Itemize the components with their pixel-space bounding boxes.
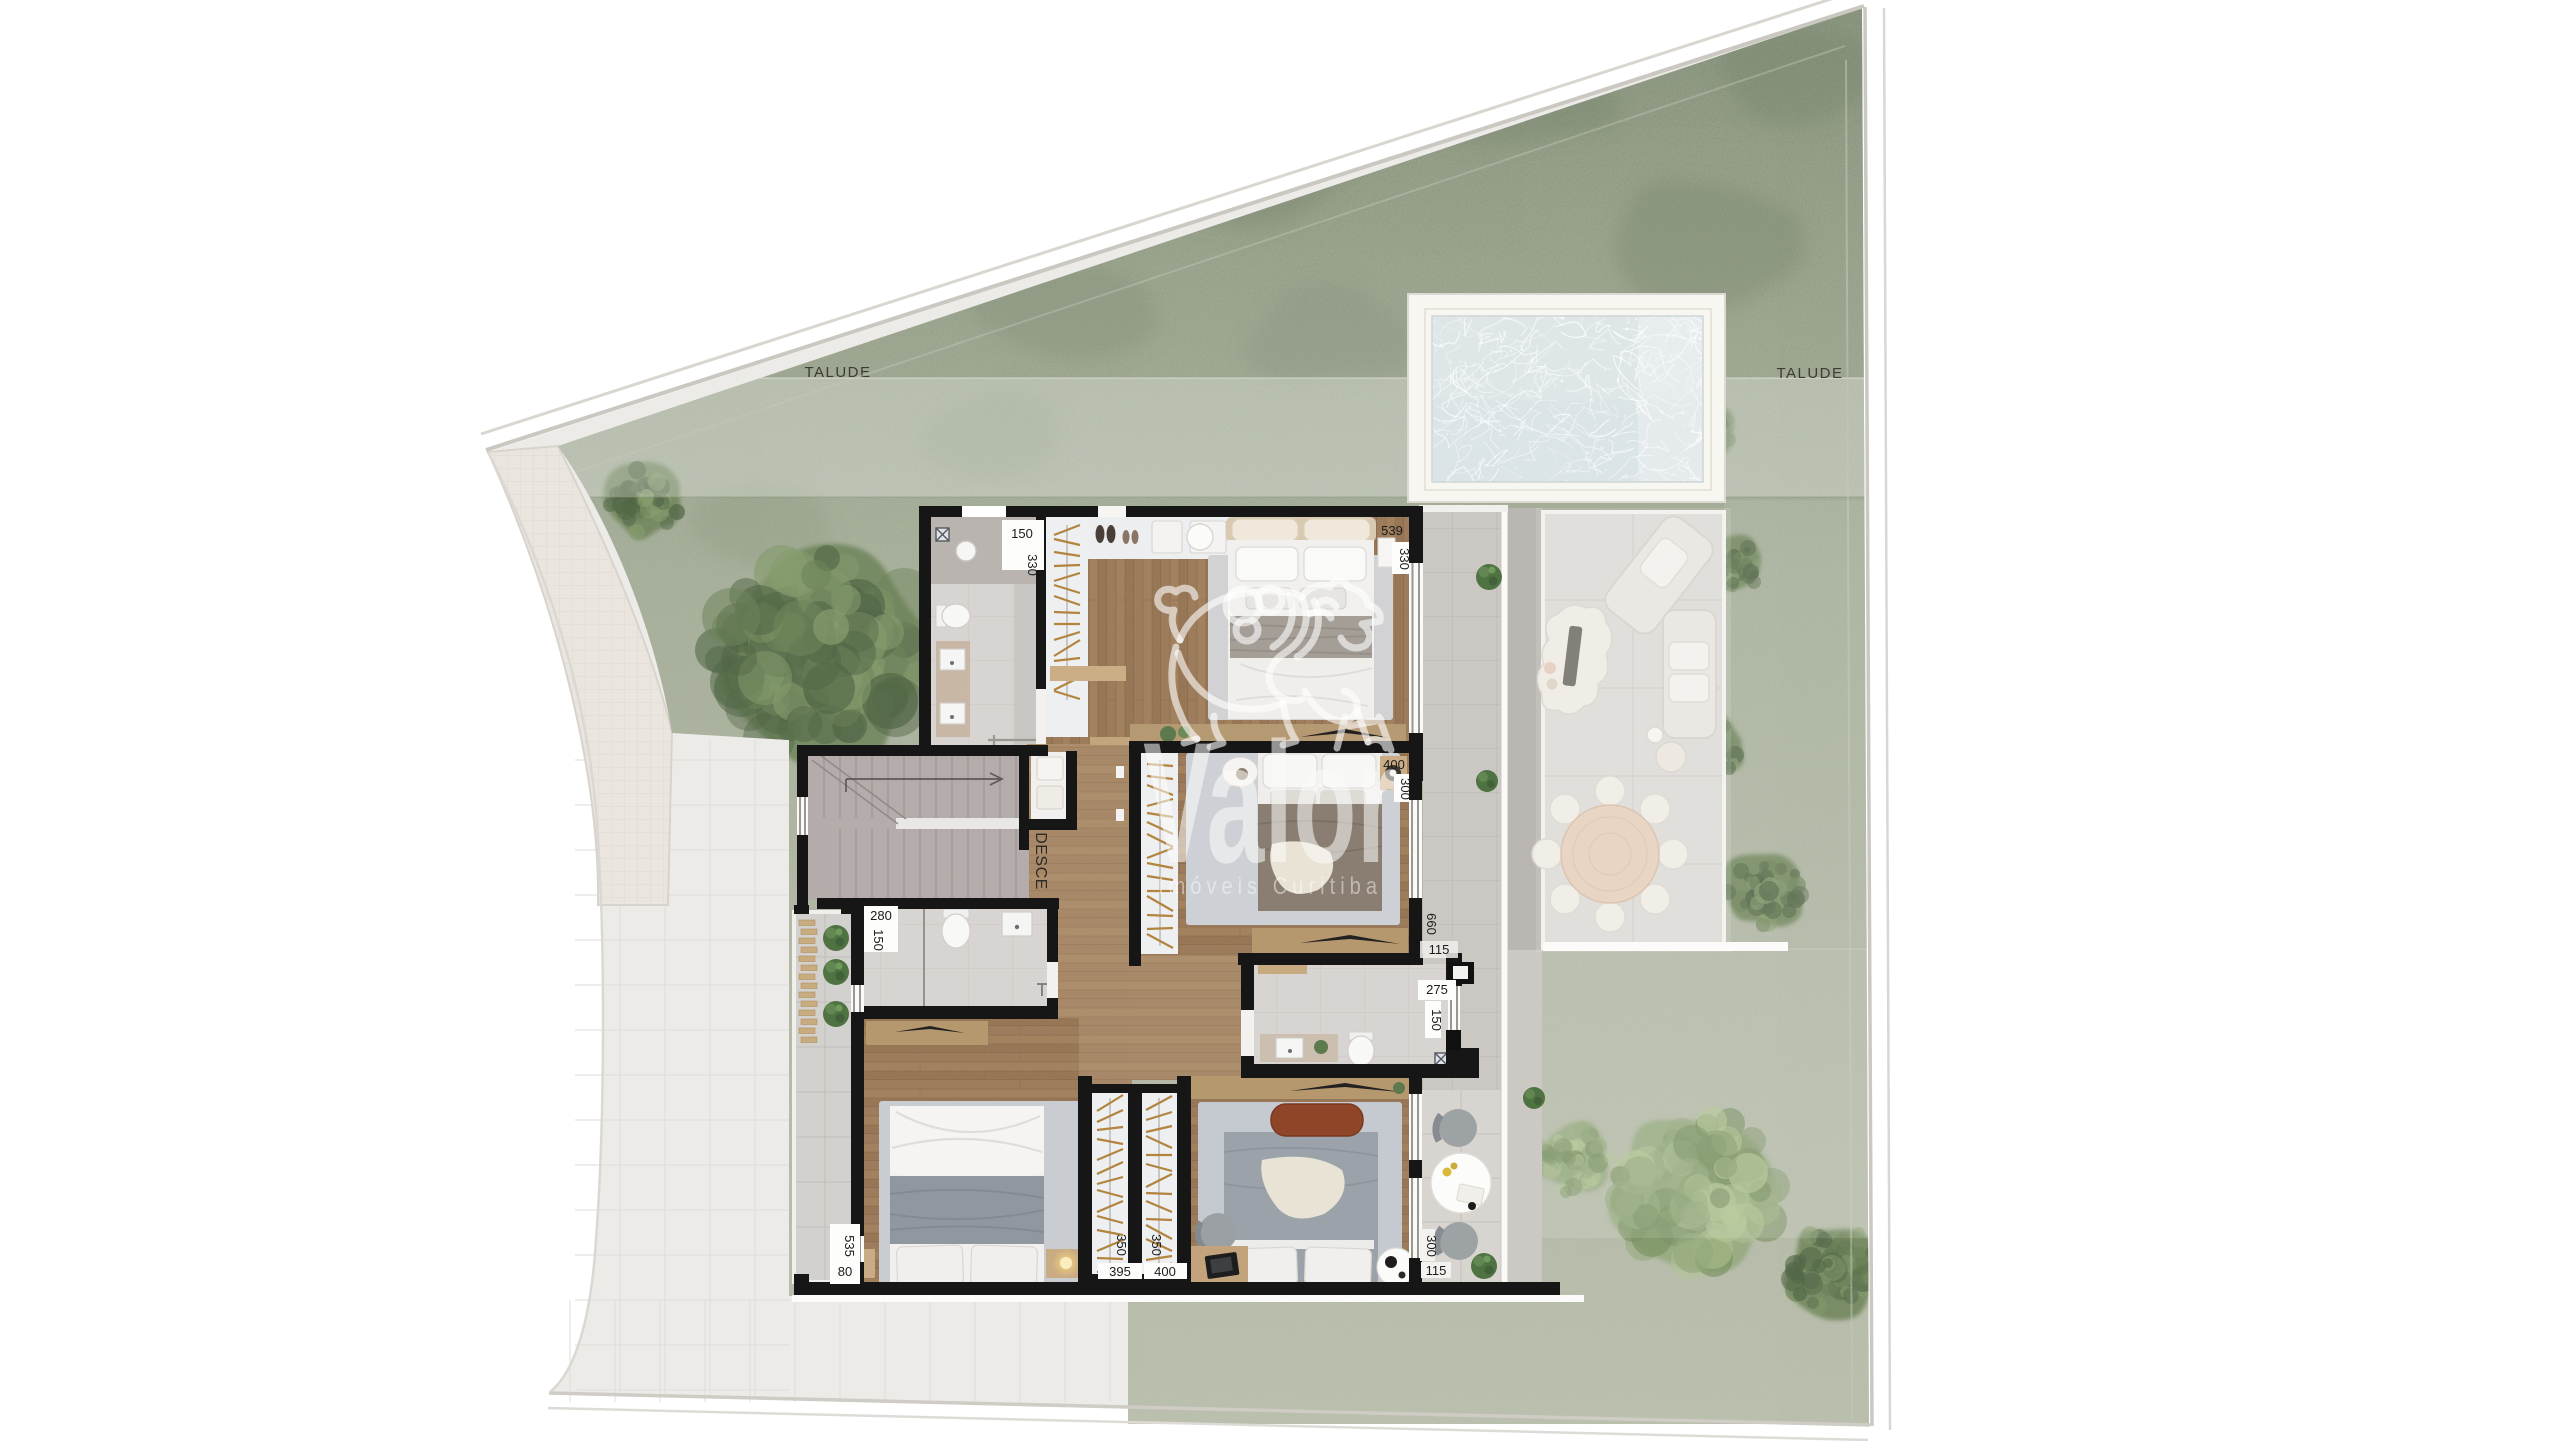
svg-text:300: 300 [1424, 1235, 1439, 1257]
svg-text:280: 280 [870, 908, 892, 923]
svg-text:350: 350 [1114, 1234, 1129, 1256]
svg-text:TALUDE: TALUDE [804, 364, 871, 381]
svg-text:150: 150 [871, 929, 886, 951]
svg-text:300: 300 [1398, 778, 1413, 800]
svg-text:395: 395 [1109, 1264, 1131, 1279]
svg-text:350: 350 [1149, 1234, 1164, 1256]
svg-text:400: 400 [1154, 1264, 1176, 1279]
svg-text:80: 80 [838, 1264, 852, 1279]
svg-text:539: 539 [1381, 523, 1403, 538]
svg-text:150: 150 [1011, 526, 1033, 541]
svg-text:Valor: Valor [1143, 707, 1397, 899]
svg-text:535: 535 [842, 1235, 857, 1257]
svg-text:275: 275 [1426, 982, 1448, 997]
svg-text:DESCE: DESCE [1032, 832, 1049, 890]
svg-text:115: 115 [1426, 1263, 1447, 1278]
svg-text:Imóveis Curitiba: Imóveis Curitiba [1158, 873, 1382, 900]
svg-text:115: 115 [1429, 942, 1450, 957]
svg-text:330: 330 [1025, 554, 1040, 576]
svg-text:150: 150 [1429, 1009, 1444, 1031]
svg-text:660: 660 [1424, 913, 1439, 935]
svg-text:TALUDE: TALUDE [1776, 365, 1843, 382]
svg-text:330: 330 [1397, 548, 1412, 570]
